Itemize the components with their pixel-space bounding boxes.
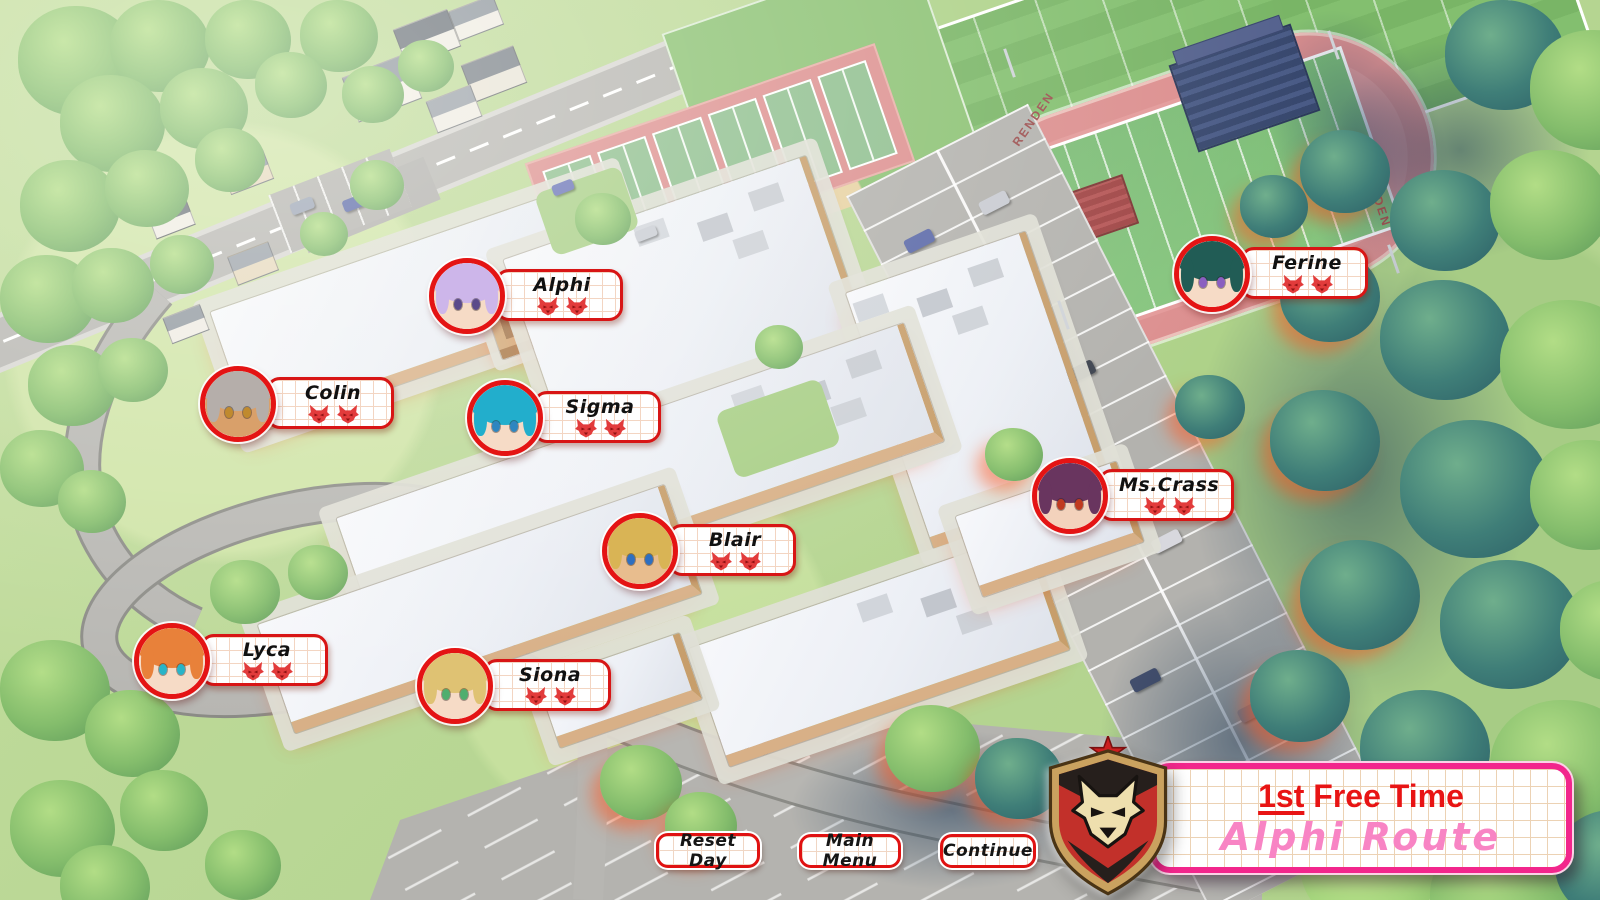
character-marker-blair[interactable]: Blair: [602, 513, 678, 589]
wolf-affection-icon: [1282, 274, 1304, 294]
affection-icons: [537, 296, 588, 316]
character-avatar: [1174, 236, 1250, 312]
wolf-affection-icon: [739, 551, 761, 571]
character-name: Siona: [519, 665, 581, 686]
reset-day-button[interactable]: Reset Day: [656, 833, 760, 868]
affection-icons: [710, 551, 761, 571]
character-avatar: [429, 258, 505, 334]
wolf-affection-icon: [566, 296, 588, 316]
avatar-hair: [422, 653, 488, 719]
character-avatar: [1032, 458, 1108, 534]
character-label: Alphi: [495, 269, 623, 321]
affection-icons: [1282, 274, 1333, 294]
character-avatar: [200, 366, 276, 442]
wolf-affection-icon: [308, 404, 330, 424]
affection-icons: [525, 686, 576, 706]
wolf-affection-icon: [710, 551, 732, 571]
character-name: Ms.Crass: [1119, 475, 1219, 496]
character-label: Lyca: [200, 634, 328, 686]
character-label: Sigma: [533, 391, 661, 443]
free-time-title: 1st Free Time: [1258, 778, 1464, 814]
affection-icons: [1144, 496, 1195, 516]
affection-icons: [242, 661, 293, 681]
wolf-affection-icon: [242, 661, 264, 681]
character-avatar: [417, 648, 493, 724]
affection-icons: [575, 418, 626, 438]
affection-icons: [308, 404, 359, 424]
main-menu-button[interactable]: Main Menu: [799, 834, 901, 868]
school-crest-logo: [1042, 736, 1174, 898]
wolf-affection-icon: [1144, 496, 1166, 516]
character-name: Lyca: [243, 640, 291, 661]
character-label: Ferine: [1240, 247, 1368, 299]
route-banner: 1st Free Time Alphi Route: [1150, 763, 1572, 873]
character-marker-alphi[interactable]: Alphi: [429, 258, 505, 334]
character-marker-siona[interactable]: Siona: [417, 648, 493, 724]
character-marker-mscrass[interactable]: Ms.Crass: [1032, 458, 1108, 534]
wolf-affection-icon: [554, 686, 576, 706]
wolf-affection-icon: [337, 404, 359, 424]
character-avatar: [134, 623, 210, 699]
character-avatar: [467, 380, 543, 456]
wolf-affection-icon: [1311, 274, 1333, 294]
character-name: Colin: [305, 383, 361, 404]
character-label: Ms.Crass: [1098, 469, 1234, 521]
route-name: Alphi Route: [1221, 816, 1501, 858]
wolf-affection-icon: [271, 661, 293, 681]
character-marker-lyca[interactable]: Lyca: [134, 623, 210, 699]
avatar-hair: [1037, 463, 1103, 529]
wolf-affection-icon: [1173, 496, 1195, 516]
avatar-hair: [1179, 241, 1245, 307]
continue-button[interactable]: Continue: [940, 834, 1036, 868]
character-name: Ferine: [1272, 253, 1342, 274]
character-marker-sigma[interactable]: Sigma: [467, 380, 543, 456]
character-label: Colin: [266, 377, 394, 429]
character-label: Siona: [483, 659, 611, 711]
wolf-affection-icon: [525, 686, 547, 706]
avatar-hair: [607, 518, 673, 584]
avatar-hair: [434, 263, 500, 329]
wolf-affection-icon: [604, 418, 626, 438]
character-name: Blair: [709, 530, 761, 551]
character-marker-ferine[interactable]: Ferine: [1174, 236, 1250, 312]
campus-map: RENDEN RENDEN Alphi Fe: [0, 0, 1600, 900]
avatar-hair: [139, 628, 205, 694]
character-marker-colin[interactable]: Colin: [200, 366, 276, 442]
character-label: Blair: [668, 524, 796, 576]
avatar-hair: [205, 371, 271, 437]
character-avatar: [602, 513, 678, 589]
character-name: Alphi: [533, 275, 590, 296]
wolf-affection-icon: [575, 418, 597, 438]
wolf-affection-icon: [537, 296, 559, 316]
character-name: Sigma: [566, 397, 635, 418]
avatar-hair: [472, 385, 538, 451]
